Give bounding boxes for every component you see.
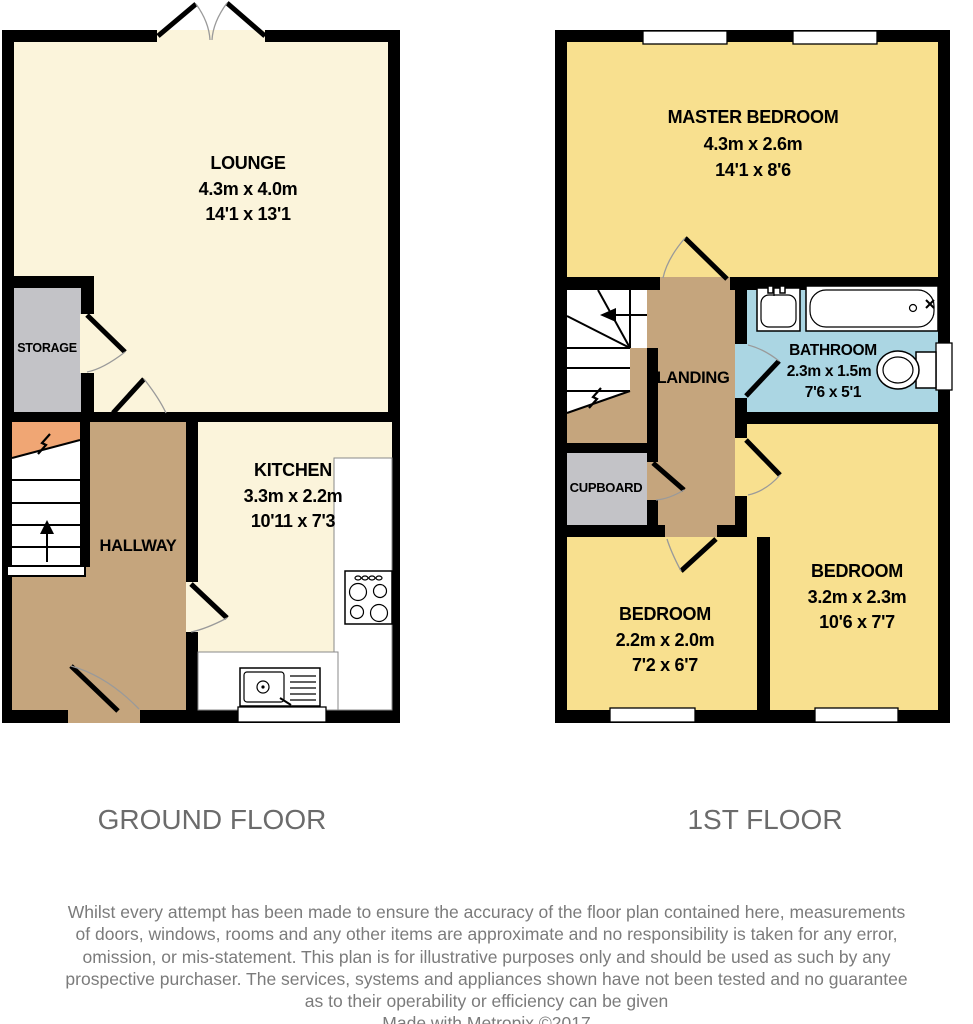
credit-line: Made with Metropix ©2017 — [0, 1012, 973, 1024]
room-label: STORAGE — [17, 341, 77, 355]
kitchen-sink-icon — [240, 668, 320, 706]
room-label: BEDROOM — [811, 561, 903, 581]
disclaimer-line: Whilst every attempt has been made to en… — [0, 901, 973, 923]
room-dims-imperial: 14'1 x 8'6 — [715, 160, 791, 180]
room-dims-imperial: 10'11 x 7'3 — [251, 511, 336, 531]
ground-floor-plan: LOUNGE 4.3m x 4.0m 14'1 x 13'1 STORAGE K… — [2, 3, 400, 723]
floorplan-drawing: LOUNGE 4.3m x 4.0m 14'1 x 13'1 STORAGE K… — [0, 0, 973, 780]
kitchen-wall — [186, 422, 198, 710]
room-dims-imperial: 14'1 x 13'1 — [205, 204, 291, 224]
disclaimer-line: omission, or mis-statement. This plan is… — [0, 946, 973, 968]
room-label: CUPBOARD — [570, 480, 643, 495]
bathtub-icon — [806, 286, 938, 331]
bedroom-large-door-opening — [735, 438, 747, 496]
cupboard-wall — [555, 443, 658, 453]
room-label: BATHROOM — [789, 342, 877, 359]
master-window — [793, 31, 877, 44]
bedroom-large-window — [815, 708, 898, 722]
hob-icon — [345, 571, 392, 624]
disclaimer: Whilst every attempt has been made to en… — [0, 901, 973, 1024]
room-dims-imperial: 10'6 x 7'7 — [819, 612, 895, 632]
disclaimer-line: prospective purchaser. The services, sys… — [0, 968, 973, 990]
room-dims-metric: 2.2m x 2.0m — [616, 630, 715, 650]
ground-floor-label: GROUND FLOOR — [0, 804, 424, 836]
front-door-opening — [68, 710, 140, 723]
bathroom-door-opening — [735, 344, 747, 398]
stairs-side-wall — [80, 422, 90, 567]
first-floor-label: 1ST FLOOR — [555, 804, 973, 836]
first-floor-plan: MASTER BEDROOM 4.3m x 2.6m 14'1 x 8'6 LA… — [555, 30, 952, 723]
room-dims-metric: 3.3m x 2.2m — [244, 486, 343, 506]
disclaimer-line: as to their operability or efficiency ca… — [0, 990, 973, 1012]
master-window — [643, 31, 727, 44]
bedroom-divider-wall — [757, 537, 770, 710]
room-dims-imperial: 7'6 x 5'1 — [805, 384, 862, 401]
floorplan-page: LOUNGE 4.3m x 4.0m 14'1 x 13'1 STORAGE K… — [0, 0, 973, 1024]
room-dims-imperial: 7'2 x 6'7 — [632, 655, 698, 675]
room-dims-metric: 3.2m x 2.3m — [808, 587, 907, 607]
bedroom-small-door-opening — [665, 525, 717, 537]
stairs-base-step — [7, 566, 85, 576]
room-dims-metric: 4.3m x 4.0m — [199, 179, 298, 199]
room-label: LANDING — [656, 369, 729, 387]
bathroom-sink-icon — [757, 286, 800, 331]
master-door-opening — [660, 277, 730, 290]
stairs-side-wall — [647, 348, 658, 443]
room-label: BEDROOM — [619, 604, 711, 624]
room-label: HALLWAY — [99, 537, 176, 555]
disclaimer-line: of doors, windows, rooms and any other i… — [0, 923, 973, 945]
toilet-icon — [877, 351, 936, 389]
room-dims-metric: 2.3m x 1.5m — [787, 363, 872, 380]
room-dims-metric: 4.3m x 2.6m — [704, 134, 803, 154]
bedroom-small-window — [610, 708, 695, 722]
room-label: MASTER BEDROOM — [668, 107, 839, 127]
kitchen-window — [238, 707, 326, 722]
room-label: LOUNGE — [210, 153, 285, 173]
bathroom-window — [936, 343, 952, 390]
room-label: KITCHEN — [254, 460, 332, 480]
french-door-opening — [157, 30, 265, 42]
